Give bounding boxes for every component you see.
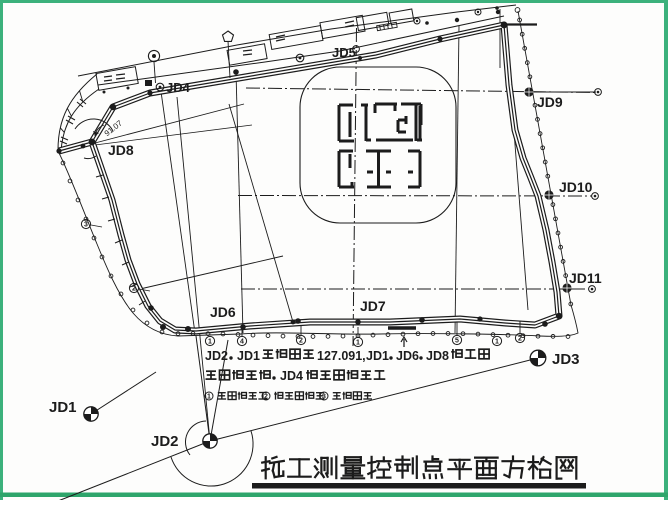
svg-text:JD1: JD1 xyxy=(49,399,77,416)
svg-text:JD2: JD2 xyxy=(205,349,228,363)
svg-text:JD2: JD2 xyxy=(151,433,179,450)
svg-text:127.091,: 127.091, xyxy=(317,349,366,363)
svg-text:1: 1 xyxy=(356,340,360,347)
svg-text:JD7: JD7 xyxy=(360,298,386,314)
svg-text:3: 3 xyxy=(322,394,326,401)
svg-text:JD10: JD10 xyxy=(559,179,593,195)
svg-text:JD6: JD6 xyxy=(396,349,419,363)
svg-text:2: 2 xyxy=(299,338,303,345)
svg-text:JD4: JD4 xyxy=(166,80,191,95)
svg-text:JD3: JD3 xyxy=(552,351,580,368)
svg-text:JD8: JD8 xyxy=(426,349,449,363)
svg-text:JD9: JD9 xyxy=(537,94,563,110)
svg-text:4: 4 xyxy=(240,339,244,346)
svg-text:2: 2 xyxy=(264,394,268,401)
svg-text:2: 2 xyxy=(132,286,136,293)
svg-text:1: 1 xyxy=(208,339,212,346)
svg-text:JD1: JD1 xyxy=(366,349,389,363)
svg-text:JD1: JD1 xyxy=(237,349,260,363)
svg-text:JD4: JD4 xyxy=(280,369,303,383)
svg-text:5: 5 xyxy=(455,338,459,345)
svg-text:2: 2 xyxy=(518,336,522,343)
svg-text:1: 1 xyxy=(495,339,499,346)
svg-text:1: 1 xyxy=(207,394,211,401)
svg-text:3: 3 xyxy=(84,222,88,229)
svg-text:JD5: JD5 xyxy=(332,45,356,60)
svg-text:JD11: JD11 xyxy=(569,270,602,286)
svg-text:JD8: JD8 xyxy=(108,142,134,158)
svg-text:JD6: JD6 xyxy=(210,304,236,320)
